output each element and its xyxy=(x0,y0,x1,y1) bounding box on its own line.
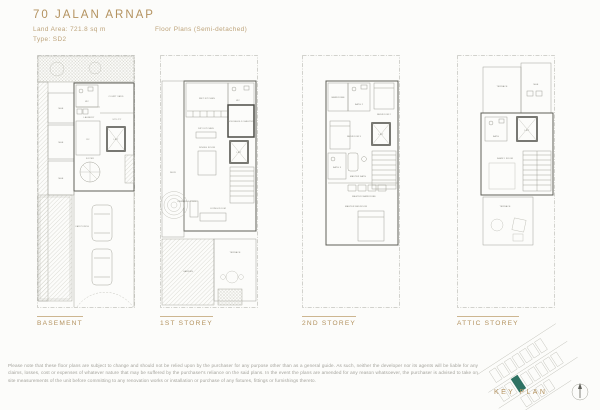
room-label-lift: LIFT xyxy=(237,152,242,154)
driveway-arc xyxy=(77,292,133,307)
room-label-lift: LIFT xyxy=(379,134,384,136)
first-storey-floorplan: DECK SWIMMING POOL WET KITCHEN WC HOUSEH… xyxy=(160,55,258,313)
room-label-wc: WC xyxy=(236,100,240,102)
room-label-bedroom2: BEDROOM 2 xyxy=(377,114,392,116)
room-label-me3: M&E xyxy=(59,178,64,180)
stairs-icon xyxy=(372,151,396,189)
room-label-masterbedroom: MASTER BEDROOM xyxy=(345,205,367,208)
shaft-hatch xyxy=(125,155,134,183)
room-label-laundry: LAUNDRY xyxy=(84,116,95,119)
bed-icon xyxy=(374,83,394,109)
attic-storey-label: ATTIC STOREY xyxy=(457,316,519,327)
lift-icon xyxy=(517,117,537,141)
room-label-dining: DINING ROOM xyxy=(199,147,215,149)
key-plan-label: KEY PLAN xyxy=(494,389,547,396)
room-label-pool: SWIMMING POOL xyxy=(177,201,197,203)
stairs-icon xyxy=(230,167,254,203)
attic-storey-floorplan: TERRACE M&E BATH LIFT FAMILY ROOM xyxy=(457,55,555,313)
room-label-terrace1: TERRACE xyxy=(497,85,508,88)
room-label-terrace: TERRACE xyxy=(230,251,241,254)
room-label-lift: LIFT xyxy=(114,139,119,141)
bed-icon xyxy=(358,211,384,241)
room-label-family: FAMILY ROOM xyxy=(497,157,513,160)
room-label-me1: M&E xyxy=(59,108,64,110)
garden-hatch xyxy=(38,195,72,301)
car-icon xyxy=(92,205,112,241)
deck-strip xyxy=(162,81,184,237)
room-label-courtyard: COURT YARD xyxy=(109,95,124,98)
unit-type-text: Type: SD2 xyxy=(33,36,66,43)
land-area-text: Land Area: 721.8 sq m xyxy=(33,26,106,33)
room-label-masterwardrobe: MASTER WARDROBE xyxy=(352,195,376,198)
lot-boundary xyxy=(458,56,555,308)
car-porch xyxy=(74,191,134,307)
room-label-bedroom3: BEDROOM 3 xyxy=(347,136,362,138)
upper-terrace xyxy=(483,67,521,113)
room-label-terrace2: TERRACE xyxy=(500,205,511,208)
room-label-lift: LIFT xyxy=(525,130,530,132)
basement-floorplan: M&E M&E M&E WC COURT YARD LAUNDRY UTILIT… xyxy=(37,55,135,313)
room-label-me2: M&E xyxy=(59,142,64,144)
rug-icon xyxy=(489,163,515,189)
first-storey-label: 1ST STOREY xyxy=(160,316,213,327)
closet-icon xyxy=(328,183,398,191)
spiral-stair-icon xyxy=(80,162,100,182)
stairs-icon xyxy=(523,151,551,191)
sheet-subtitle: Floor Plans (Semi-detached) xyxy=(155,26,247,33)
dining-table-icon xyxy=(198,151,216,175)
room-label-shelter: HOUSEHOLD SHELTER xyxy=(228,121,254,123)
kitchen-counter-icon xyxy=(186,83,228,117)
basement-label: BASEMENT xyxy=(37,316,83,327)
car-icon xyxy=(92,249,112,285)
bathtub-icon xyxy=(348,153,366,171)
rc-room xyxy=(76,121,100,155)
room-label-bath2: BATH 2 xyxy=(355,103,364,106)
room-label-bath3: BATH 3 xyxy=(333,166,342,169)
me-equipment-icon xyxy=(521,63,551,113)
page-title: 70 JALAN ARNAP xyxy=(33,9,155,21)
patio-furniture-icon xyxy=(491,218,526,241)
room-label-drykitchen: DRY KITCHEN xyxy=(198,128,214,130)
room-label-garden: GARDEN xyxy=(183,270,193,273)
room-label-bath: BATH xyxy=(493,135,499,138)
second-storey-label: 2ND STOREY xyxy=(302,316,356,327)
second-storey-floorplan: WARDROBE BATH 2 BEDROOM 2 BEDROOM 3 xyxy=(302,55,400,313)
room-label-utility: UTILITY xyxy=(113,119,122,121)
site-map xyxy=(477,324,586,410)
laundry-machines-icon xyxy=(76,107,100,114)
patio-table-icon xyxy=(221,271,244,283)
disclaimer-text: Please note that these floor plans are s… xyxy=(8,362,478,384)
sofa-icon xyxy=(190,201,226,221)
wc-fixtures-icon xyxy=(228,83,254,105)
room-label-wardrobe: WARDROBE xyxy=(331,96,345,99)
room-label-foyer: FOYER xyxy=(86,158,94,160)
pool-icon xyxy=(161,192,188,219)
bath-fixtures-icon xyxy=(328,153,346,179)
wc-fixtures-icon xyxy=(76,85,98,107)
room-label-wc: WC xyxy=(85,101,89,103)
entry-hatch xyxy=(218,289,242,305)
key-plan xyxy=(483,338,598,408)
room-label-carporch: CAR PORCH xyxy=(75,225,89,228)
north-compass-icon xyxy=(572,383,588,400)
room-label-rc: RC xyxy=(86,139,90,141)
island-counter-icon xyxy=(196,132,216,138)
lot-boundary xyxy=(303,56,400,308)
room-label-me: M&E xyxy=(534,84,539,86)
lower-terrace xyxy=(483,197,533,245)
room-label-masterbath: MASTER BATH xyxy=(350,175,367,178)
floor-plan-sheet: 70 JALAN ARNAP Land Area: 721.8 sq m Typ… xyxy=(0,0,600,410)
room-label-living: LIVING ROOM xyxy=(210,208,226,210)
bed-icon xyxy=(330,121,350,149)
room-label-deck: DECK xyxy=(170,172,177,174)
room-label-wetkitchen: WET KITCHEN xyxy=(199,98,215,100)
bath-fixtures-icon xyxy=(348,83,370,111)
